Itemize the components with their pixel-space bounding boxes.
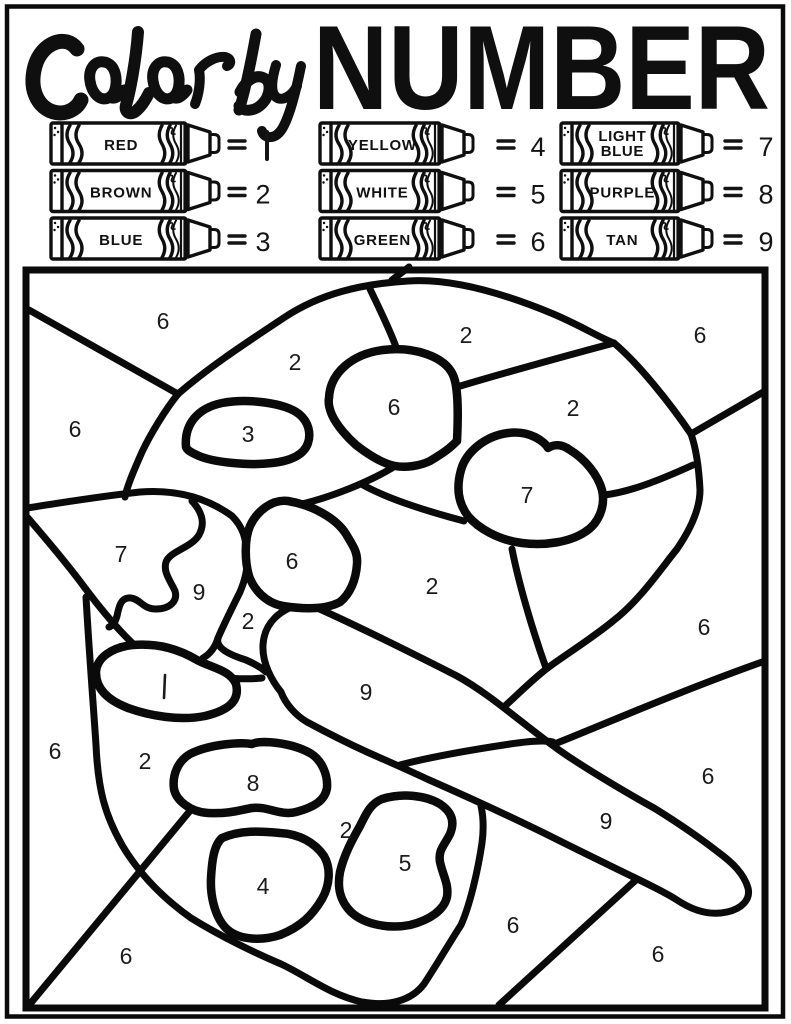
svg-text:8: 8 — [247, 770, 260, 796]
svg-text:9: 9 — [758, 227, 773, 257]
svg-text:6: 6 — [157, 308, 170, 334]
svg-text:2: 2 — [567, 395, 580, 421]
svg-text:6: 6 — [69, 416, 82, 442]
svg-text:9: 9 — [360, 679, 373, 705]
svg-text:6: 6 — [286, 548, 299, 574]
svg-text:2: 2 — [426, 573, 439, 599]
svg-text:6: 6 — [388, 394, 401, 420]
svg-text:7: 7 — [758, 132, 773, 162]
svg-text:6: 6 — [507, 912, 520, 938]
svg-text:GREEN: GREEN — [354, 232, 411, 249]
svg-text:7: 7 — [115, 541, 128, 567]
svg-text:2: 2 — [340, 817, 353, 843]
svg-text:6: 6 — [49, 738, 62, 764]
svg-text:BLUE: BLUE — [601, 143, 644, 160]
svg-text:4: 4 — [530, 132, 545, 162]
svg-text:8: 8 — [758, 180, 773, 210]
svg-text:BROWN: BROWN — [90, 185, 152, 202]
svg-text:6: 6 — [698, 614, 711, 640]
svg-text:6: 6 — [120, 943, 133, 969]
svg-text:5: 5 — [399, 850, 412, 876]
svg-text:2: 2 — [139, 748, 152, 774]
svg-text:5: 5 — [530, 180, 545, 210]
svg-text:BLUE: BLUE — [99, 232, 143, 249]
svg-text:TAN: TAN — [606, 232, 638, 249]
svg-text:2: 2 — [242, 608, 255, 634]
svg-text:6: 6 — [702, 763, 715, 789]
svg-text:4: 4 — [257, 873, 270, 899]
svg-text:7: 7 — [521, 482, 534, 508]
svg-text:3: 3 — [255, 227, 270, 257]
svg-text:2: 2 — [289, 349, 302, 375]
svg-text:6: 6 — [652, 941, 665, 967]
svg-text:NUMBER: NUMBER — [313, 1, 770, 135]
svg-text:YELLOW: YELLOW — [348, 137, 417, 154]
svg-text:6: 6 — [530, 227, 545, 257]
svg-text:2: 2 — [255, 180, 270, 210]
svg-text:WHITE: WHITE — [356, 185, 408, 202]
svg-text:RED: RED — [104, 137, 138, 154]
svg-text:9: 9 — [600, 808, 613, 834]
svg-text:2: 2 — [460, 322, 473, 348]
svg-text:9: 9 — [193, 579, 206, 605]
svg-text:3: 3 — [242, 421, 255, 447]
svg-text:PURPLE: PURPLE — [590, 185, 656, 202]
svg-text:6: 6 — [694, 322, 707, 348]
